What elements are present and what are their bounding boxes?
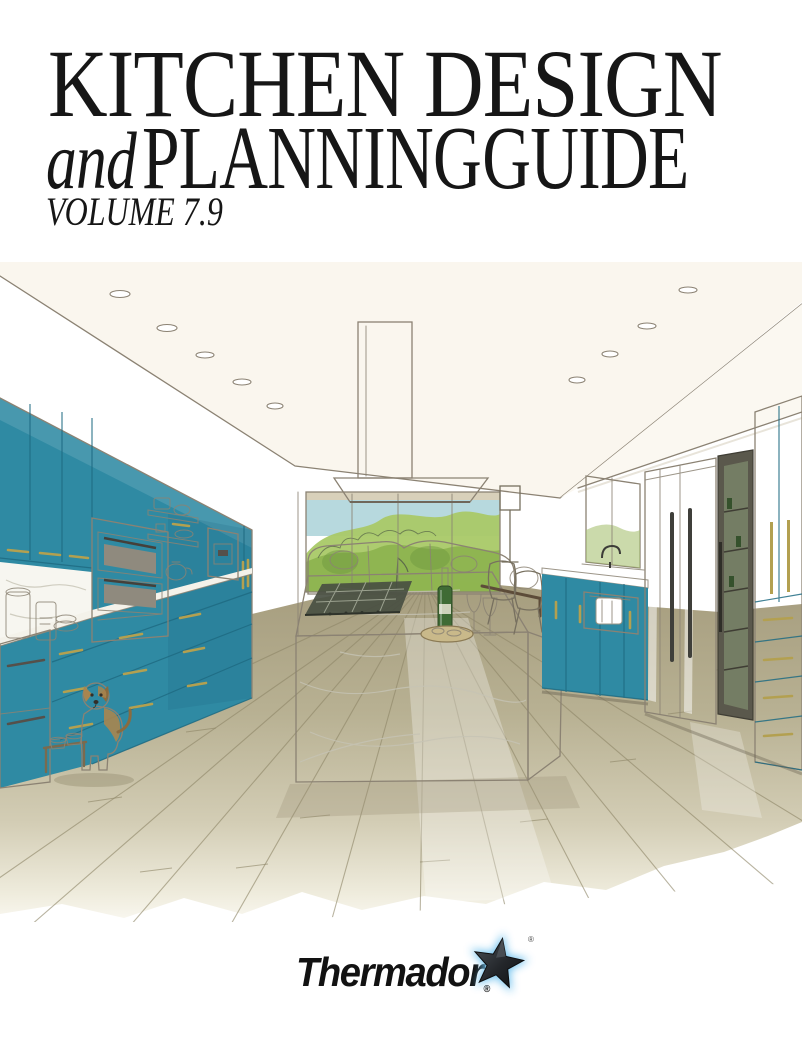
sink-window [582, 476, 644, 570]
kitchen-illustration [0, 262, 802, 922]
title-line2-main: PLANNING GUIDE [142, 109, 688, 208]
thermador-logo: Thermador® ® [296, 940, 556, 1012]
volume-label: VOLUME 7.9 [46, 192, 223, 232]
wine-column [718, 450, 753, 720]
gas-cooktop [305, 581, 412, 616]
serving-board [421, 626, 473, 642]
thermador-star-icon: ® [460, 926, 538, 1000]
star-registered-mark: ® [528, 935, 534, 944]
floor-lamp [500, 486, 520, 562]
cover-page: KITCHEN DESIGN andPLANNING GUIDE VOLUME … [0, 0, 802, 1037]
